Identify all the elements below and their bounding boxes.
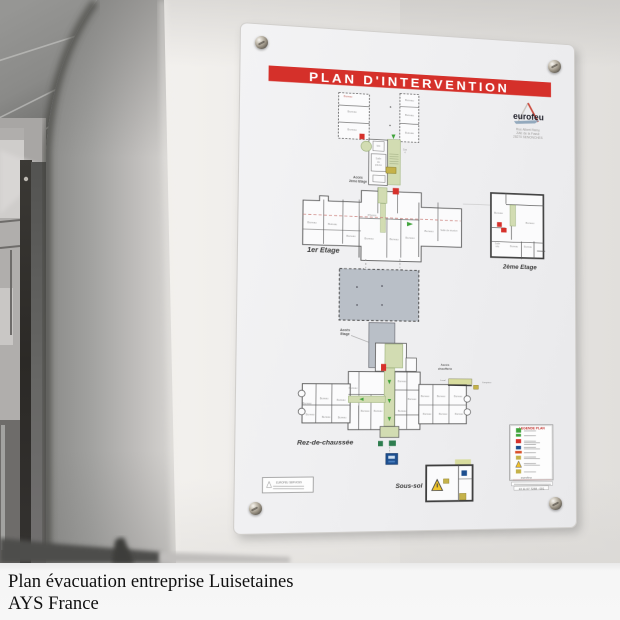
svg-text:Photos: Photos — [368, 213, 377, 217]
svg-text:Bureau: Bureau — [389, 237, 398, 241]
svg-text:Bureau: Bureau — [439, 412, 448, 416]
svg-text:Bureau: Bureau — [306, 413, 315, 417]
svg-text:Bureau: Bureau — [328, 222, 338, 226]
svg-text:2ème Etage: 2ème Etage — [349, 179, 367, 183]
svg-text:Rez-de-chaussée: Rez-de-chaussée — [297, 439, 353, 446]
svg-text:Bureau: Bureau — [526, 221, 535, 225]
svg-text:Bureau: Bureau — [303, 402, 312, 406]
svg-text:Bureau: Bureau — [405, 131, 414, 135]
svg-text:Bureau: Bureau — [374, 409, 383, 413]
svg-text:Etage: Etage — [340, 332, 349, 336]
svg-text:WC: WC — [377, 145, 381, 148]
svg-text:PLAN D'INTERVENTION: PLAN D'INTERVENTION — [309, 70, 509, 96]
svg-text:28270 SENONCHES: 28270 SENONCHES — [513, 135, 543, 140]
svg-text:Bureau: Bureau — [346, 234, 356, 238]
svg-text:Bureau: Bureau — [424, 229, 433, 233]
svg-text:chaufferie: chaufferie — [438, 367, 453, 371]
svg-text:Bureau: Bureau — [338, 416, 347, 420]
svg-text:Bureau: Bureau — [364, 236, 374, 240]
svg-text:Compteur: Compteur — [482, 381, 492, 384]
svg-text:Bureau: Bureau — [347, 127, 357, 131]
svg-text:Bureau: Bureau — [421, 394, 430, 398]
svg-text:4: 4 — [404, 151, 406, 154]
svg-text:Bureau: Bureau — [408, 397, 417, 401]
svg-text:13 11 07 7268 - 001: 13 11 07 7268 - 001 — [519, 487, 545, 491]
svg-text:Bureau: Bureau — [405, 98, 414, 102]
svg-text:Bureau: Bureau — [494, 211, 503, 215]
svg-text:Bureau: Bureau — [423, 412, 432, 416]
svg-text:Bureau: Bureau — [398, 409, 407, 413]
svg-text:LEGENDE PLAN: LEGENDE PLAN — [519, 426, 545, 430]
svg-text:Bureau: Bureau — [349, 386, 358, 390]
svg-text:Local: Local — [440, 380, 446, 382]
svg-text:1er Etage: 1er Etage — [307, 245, 340, 254]
svg-text:Bureau: Bureau — [454, 394, 463, 398]
svg-text:Bureau: Bureau — [347, 109, 357, 113]
svg-text:Bureau: Bureau — [344, 95, 353, 99]
svg-text:Bureau: Bureau — [398, 379, 407, 383]
svg-text:Bureau: Bureau — [320, 397, 329, 401]
svg-text:eurofeu: eurofeu — [521, 475, 532, 479]
svg-text:2ème Etage: 2ème Etage — [502, 264, 537, 271]
svg-text:Bureau: Bureau — [405, 113, 414, 117]
svg-text:EUROFEU SERVICES: EUROFEU SERVICES — [276, 481, 302, 484]
svg-text:Bureau: Bureau — [510, 245, 519, 249]
svg-text:info: info — [496, 245, 500, 248]
svg-text:pause: pause — [375, 164, 382, 167]
svg-text:Bureau: Bureau — [524, 245, 532, 249]
svg-text:Bureau: Bureau — [455, 412, 464, 416]
svg-text:Bureau: Bureau — [361, 409, 370, 413]
svg-text:Bureau: Bureau — [322, 415, 331, 419]
svg-text:Bureau: Bureau — [437, 394, 446, 398]
svg-text:Bureau: Bureau — [405, 236, 414, 240]
svg-text:Salle de réunion: Salle de réunion — [440, 229, 458, 232]
svg-text:Sous-sol: Sous-sol — [395, 483, 422, 490]
svg-text:Bureau: Bureau — [307, 220, 317, 224]
svg-text:eurofeu: eurofeu — [513, 112, 544, 123]
svg-text:Bureau: Bureau — [337, 398, 346, 402]
